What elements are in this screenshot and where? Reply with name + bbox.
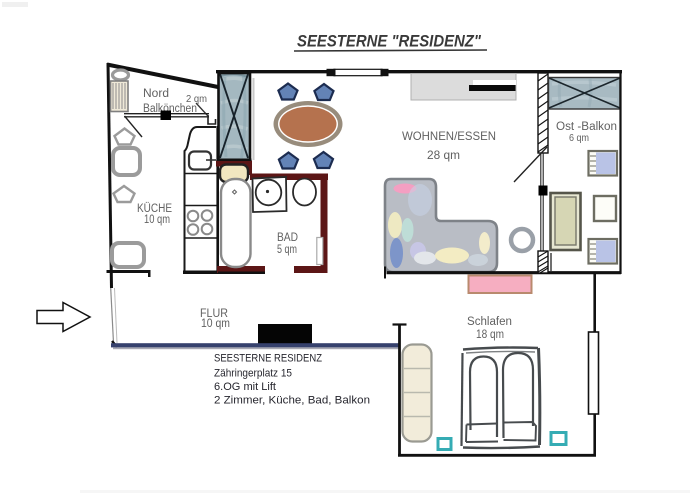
svg-text:6 qm: 6 qm (569, 133, 589, 144)
svg-text:6.OG mit Lift: 6.OG mit Lift (214, 381, 276, 393)
svg-text:SEESTERNE "RESIDENZ": SEESTERNE "RESIDENZ" (297, 32, 482, 51)
svg-text:18 qm: 18 qm (476, 329, 504, 341)
svg-text:10 qm: 10 qm (144, 214, 170, 226)
svg-text:Ost -Balkon: Ost -Balkon (556, 121, 617, 133)
svg-text:BAD: BAD (277, 232, 298, 244)
svg-text:WOHNEN/ESSEN: WOHNEN/ESSEN (402, 129, 496, 143)
svg-text:Nord: Nord (143, 88, 169, 100)
svg-text:Schlafen: Schlafen (467, 316, 512, 328)
svg-text:10 qm: 10 qm (201, 318, 230, 330)
svg-text:28 qm: 28 qm (427, 148, 460, 162)
svg-text:Zähringerplatz 15: Zähringerplatz 15 (214, 368, 292, 380)
svg-text:5 qm: 5 qm (277, 244, 297, 256)
svg-text:SEESTERNE RESIDENZ: SEESTERNE RESIDENZ (214, 353, 322, 365)
svg-text:2 Zimmer, Küche, Bad, Balkon: 2 Zimmer, Küche, Bad, Balkon (214, 395, 370, 407)
